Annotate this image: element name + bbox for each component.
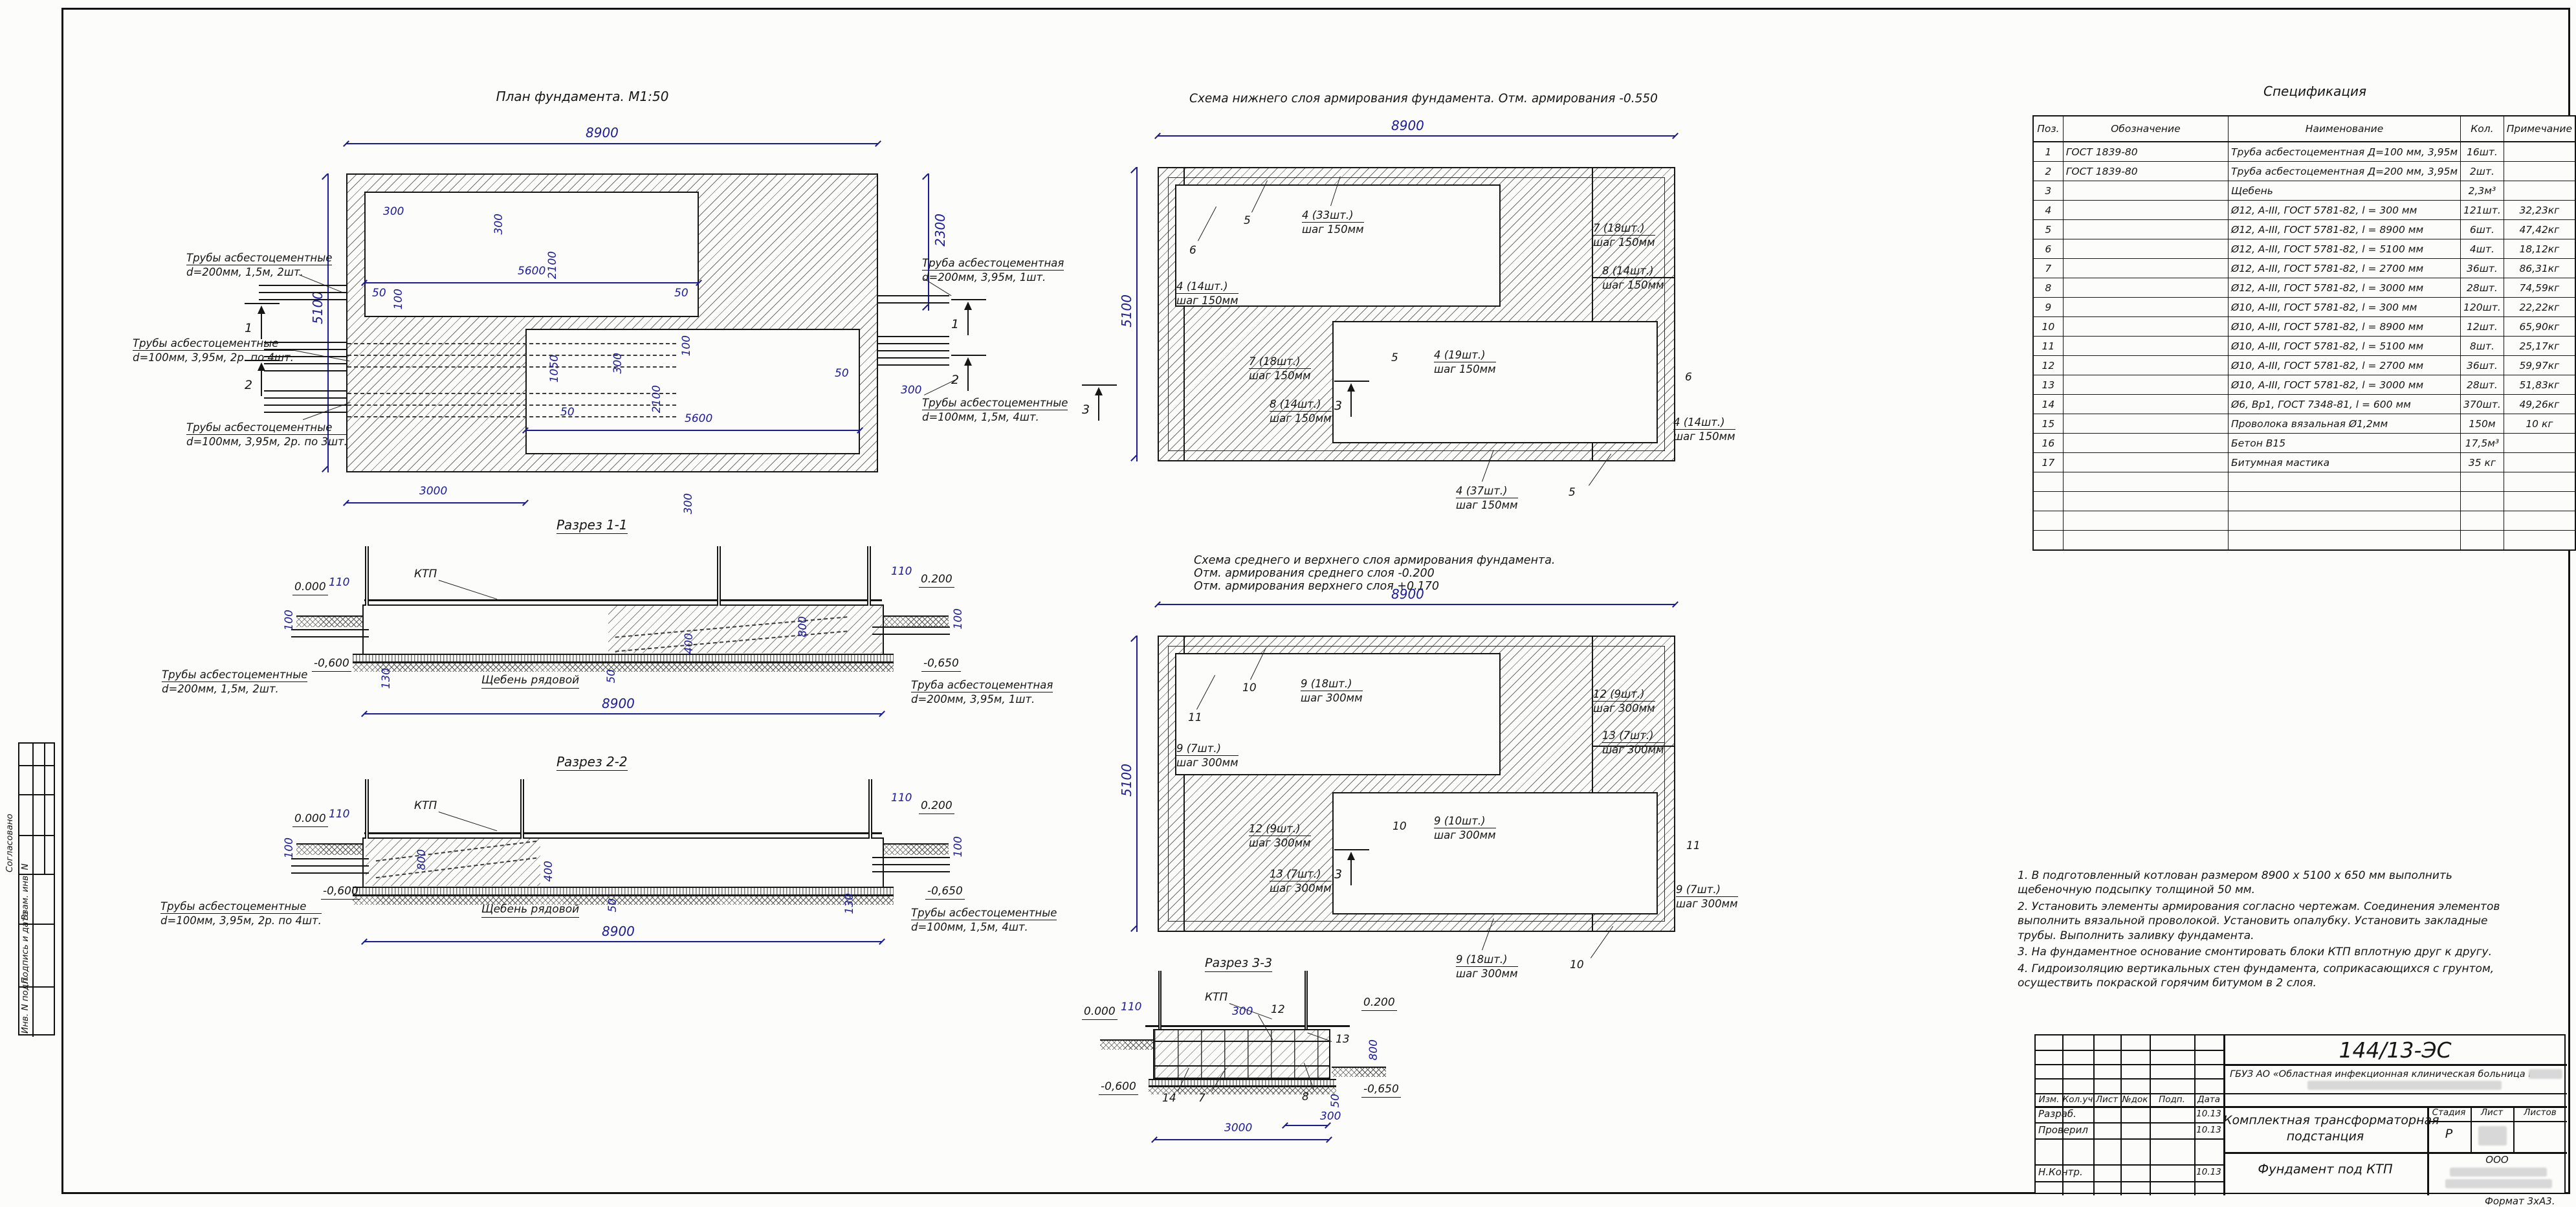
- spec-cell: [2229, 472, 2461, 492]
- spec-cell: Ø10, А-III, ГОСТ 5781-82, l = 300 мм: [2229, 298, 2461, 317]
- label-line: d=200мм, 1,5м, 2шт.: [186, 265, 332, 279]
- callout-9x18b: 9 (18шт.)шаг 300мм: [1456, 953, 1518, 981]
- tb-line: [2036, 1064, 2223, 1065]
- dim-800: 800: [416, 849, 429, 870]
- spec-cell: Ø6, Вр1, ГОСТ 7348-81, l = 600 мм: [2229, 395, 2461, 414]
- stamp-line: [32, 744, 34, 1037]
- spec-cell: [2504, 472, 2575, 492]
- callout-7x18: 7 (18шт.)шаг 150мм: [1593, 221, 1655, 250]
- callout-4x19: 4 (19шт.)шаг 150мм: [1434, 348, 1496, 377]
- level-0000: 0.000: [292, 581, 328, 595]
- dim-110: 110: [329, 808, 349, 821]
- rebar-line: [1154, 1041, 1329, 1042]
- spec-row: 4Ø12, А-III, ГОСТ 5781-82, l = 300 мм121…: [2033, 201, 2575, 220]
- spec-cell: [2063, 220, 2228, 239]
- dim-50: 50: [560, 406, 575, 419]
- scheme1-title: Схема нижнего слоя армирования фундамент…: [1184, 92, 1663, 105]
- redacted-block: [2478, 1126, 2507, 1146]
- spec-header-row: Поз. Обозначение Наименование Кол. Приме…: [2033, 116, 2575, 142]
- dim-line: [1158, 135, 1675, 137]
- tb-line: [2036, 1181, 2223, 1182]
- spec-cell: [2033, 511, 2063, 531]
- level-m600: -0,600: [321, 885, 360, 900]
- dim-line: [1158, 604, 1675, 605]
- spec-row: 16Бетон В1517,5м³: [2033, 434, 2575, 453]
- dim-line-300: [1285, 1125, 1328, 1126]
- spec-cell: [2063, 395, 2228, 414]
- gravel-label: Щебень рядовой: [481, 903, 579, 918]
- spec-row: 15Проволока вязальная Ø1,2мм150м10 кг: [2033, 414, 2575, 434]
- spec-cell: Битумная мастика: [2229, 453, 2461, 472]
- dim-line: [364, 713, 882, 714]
- spec-cell: 51,83кг: [2504, 375, 2575, 395]
- spec-cell: Труба асбестоцементная Д=100 мм, 3,95м: [2229, 142, 2461, 162]
- anchor-post: [717, 546, 721, 606]
- dim-3000: 3000: [1224, 1122, 1252, 1135]
- label-line: Трубы асбестоцементные: [186, 251, 332, 265]
- spec-row: 11Ø10, А-III, ГОСТ 5781-82, l = 5100 мм8…: [2033, 337, 2575, 356]
- label-line: Трубы асбестоцементные: [922, 396, 1068, 410]
- dim-8900: 8900: [602, 696, 635, 711]
- section-mark-3-scheme2: 3: [1334, 849, 1369, 888]
- spec-cell: [2063, 317, 2228, 337]
- spec-cell: 17: [2033, 453, 2063, 472]
- spec-cell: 59,97кг: [2504, 356, 2575, 375]
- dim-130: 130: [380, 668, 393, 689]
- callout-11b: 11: [1686, 840, 1701, 853]
- level-0000: 0.000: [1082, 1006, 1117, 1020]
- pipe-left: [291, 858, 369, 879]
- ktp-floor-line: [364, 832, 882, 834]
- spec-cell: Ø12, А-III, ГОСТ 5781-82, l = 8900 мм: [2229, 220, 2461, 239]
- spec-cell: Ø12, А-III, ГОСТ 5781-82, l = 3000 мм: [2229, 278, 2461, 298]
- dim-line-3000: [346, 502, 525, 504]
- spec-cell: [2063, 356, 2228, 375]
- listov-header: Листов: [2513, 1108, 2567, 1118]
- label-line: Трубы асбестоцементные: [186, 421, 347, 435]
- spec-row: 1ГОСТ 1839-80Труба асбестоцементная Д=10…: [2033, 142, 2575, 162]
- spec-cell: 47,42кг: [2504, 220, 2575, 239]
- spec-cell: 17,5м³: [2461, 434, 2504, 453]
- bar-12: 12: [1271, 1004, 1285, 1017]
- spec-cell: [2063, 511, 2228, 531]
- spec-cell: 10 кг: [2504, 414, 2575, 434]
- spec-row: 8Ø12, А-III, ГОСТ 5781-82, l = 3000 мм28…: [2033, 278, 2575, 298]
- callout-9x7b: 9 (7шт.)шаг 300мм: [1676, 883, 1738, 911]
- tb-line: [2120, 1035, 2122, 1195]
- dim-line-8900: [346, 143, 878, 144]
- spec-cell: 120шт.: [2461, 298, 2504, 317]
- spec-cell: 18,12кг: [2504, 239, 2575, 259]
- spec-cell: [2063, 492, 2228, 511]
- dim-110: 110: [329, 577, 349, 590]
- section-mark-2b: 2: [951, 355, 986, 393]
- project-name-line2: подстанция: [2223, 1130, 2427, 1144]
- redacted-block: [2445, 1179, 2552, 1188]
- spec-cell: 370шт.: [2461, 395, 2504, 414]
- spec-cell: [2229, 511, 2461, 531]
- spec-cell: [2063, 337, 2228, 356]
- spec-cell: [2504, 511, 2575, 531]
- dim-3000: 3000: [419, 485, 447, 498]
- stamp-line: [19, 835, 54, 836]
- stage-header: Стадия: [2427, 1108, 2471, 1118]
- ktp-label: КТП: [414, 800, 437, 813]
- spec-cell: 65,90кг: [2504, 317, 2575, 337]
- note-2: 2. Установить элементы армирования согла…: [2018, 900, 2521, 943]
- callout-10c: 10: [1570, 959, 1584, 972]
- spec-cell: [2504, 142, 2575, 162]
- dim-line: [1136, 636, 1138, 932]
- section-mark-3-scheme1: 3: [1334, 381, 1369, 419]
- rev-header-data: Дата: [2194, 1095, 2223, 1105]
- callout-13x7: 13 (7шт.)шаг 300мм: [1602, 729, 1664, 757]
- spec-row: 3Щебень2,3м³: [2033, 181, 2575, 201]
- tb-line: [2036, 1050, 2223, 1051]
- stamp-podpis-data: Подпись и дата: [21, 924, 31, 984]
- dim-line: [1136, 167, 1138, 461]
- dim-300: 300: [1232, 1006, 1253, 1019]
- dim-2100: 2100: [651, 385, 664, 413]
- pipe-right-d200: [877, 295, 949, 305]
- spec-cell: Ø10, А-III, ГОСТ 5781-82, l = 5100 мм: [2229, 337, 2461, 356]
- pipe-right: [872, 626, 950, 639]
- spec-cell: Ø12, А-III, ГОСТ 5781-82, l = 2700 мм: [2229, 259, 2461, 278]
- section1-title: Разрез 1-1: [556, 518, 628, 534]
- section-mark-1: 1: [245, 303, 280, 342]
- stamp-soglasovano: Согласовано: [5, 814, 16, 872]
- dim-line-3000: [1154, 1139, 1329, 1140]
- spec-cell: 35 кг: [2461, 453, 2504, 472]
- dim-800: 800: [1368, 1039, 1381, 1060]
- title-block: 144/13-ЭС ГБУЗ АО «Областная инфекционна…: [2034, 1034, 2566, 1194]
- section3-foundation-slab: [1153, 1029, 1330, 1079]
- dim-50: 50: [674, 287, 688, 300]
- date-razrab: 10.13: [2194, 1109, 2223, 1120]
- dim-130: 130: [844, 893, 857, 914]
- spec-cell: [2063, 414, 2228, 434]
- dim-110: 110: [891, 566, 912, 579]
- date-proveril: 10.13: [2194, 1125, 2223, 1136]
- spec-title: Спецификация: [2263, 84, 2366, 99]
- spec-cell: [2063, 375, 2228, 395]
- spec-cell: [2504, 531, 2575, 551]
- level-m650: -0,650: [925, 885, 965, 900]
- anchor-post: [1305, 971, 1308, 1029]
- spec-row: 17Битумная мастика35 кг: [2033, 453, 2575, 472]
- spec-cell: 11: [2033, 337, 2063, 356]
- dim-300: 300: [612, 353, 625, 373]
- stamp-line: [44, 744, 45, 874]
- spec-cell: 2: [2033, 162, 2063, 181]
- spec-cell: Бетон В15: [2229, 434, 2461, 453]
- spec-cell: 12шт.: [2461, 317, 2504, 337]
- spec-header-oboznachenie: Обозначение: [2063, 116, 2228, 142]
- spec-cell: [2504, 434, 2575, 453]
- stamp-line: [19, 794, 54, 795]
- dim-50: 50: [607, 898, 620, 913]
- spec-cell: ГОСТ 1839-80: [2063, 162, 2228, 181]
- anchor-post: [365, 546, 369, 606]
- spec-cell: 36шт.: [2461, 259, 2504, 278]
- dim-50: 50: [1330, 1094, 1343, 1108]
- spec-cell: 28шт.: [2461, 278, 2504, 298]
- dim-300: 300: [683, 493, 696, 514]
- dim-5100: 5100: [1119, 764, 1134, 797]
- dim-5600: 5600: [518, 265, 545, 278]
- level-0200: 0.200: [919, 573, 954, 588]
- ground-hatch: [1100, 1039, 1153, 1050]
- spec-cell: 150м: [2461, 414, 2504, 434]
- bar-8: 8: [1302, 1091, 1309, 1104]
- spec-cell: [2033, 472, 2063, 492]
- section2-foundation-slab: [362, 837, 884, 888]
- spec-cell: [2504, 162, 2575, 181]
- dim-300: 300: [1320, 1111, 1341, 1124]
- ktp-floor-line: [364, 599, 882, 601]
- spec-cell: 4шт.: [2461, 239, 2504, 259]
- dim-800: 800: [797, 616, 810, 637]
- label-line: Труба асбестоцементная: [922, 256, 1064, 271]
- dim-100: 100: [952, 836, 965, 857]
- section2-pipe-right-label: Трубы асбестоцементныеd=100мм, 1,5м, 4шт…: [911, 906, 1057, 935]
- spec-cell: [2229, 492, 2461, 511]
- spec-cell: [2063, 259, 2228, 278]
- spec-row: 14Ø6, Вр1, ГОСТ 7348-81, l = 600 мм370шт…: [2033, 395, 2575, 414]
- spec-cell: 9: [2033, 298, 2063, 317]
- spec-row: 2ГОСТ 1839-80Труба асбестоцементная Д=20…: [2033, 162, 2575, 181]
- client-name: ГБУЗ АО «Областная инфекционная клиничес…: [2230, 1069, 2527, 1080]
- scheme2-title-2: Отм. армирования среднего слоя -0.200: [1194, 567, 1435, 580]
- tb-line: [2036, 1122, 2223, 1124]
- callout-9x18: 9 (18шт.)шаг 300мм: [1301, 677, 1363, 705]
- ground-hatch: [884, 615, 949, 627]
- spec-row: [2033, 492, 2575, 511]
- plan-pipe-label-right-bot: Трубы асбестоцементные d=100мм, 1,5м, 4ш…: [922, 396, 1068, 425]
- dim-2100: 2100: [547, 251, 560, 279]
- dim-line-5600: [364, 282, 699, 283]
- notes-block: 1. В подготовленный котлован размером 89…: [2018, 869, 2521, 993]
- ground-hatch: [884, 843, 949, 855]
- dim-50: 50: [372, 287, 386, 300]
- role-razrab: Разраб.: [2038, 1109, 2076, 1120]
- spec-cell: ГОСТ 1839-80: [2063, 142, 2228, 162]
- ktp-label: КТП: [1205, 991, 1227, 1004]
- spec-cell: [2461, 531, 2504, 551]
- sheet-name: Фундамент под КТП: [2223, 1162, 2427, 1177]
- bar-13: 13: [1336, 1034, 1350, 1046]
- ground-hatch: [296, 615, 362, 627]
- callout-5c: 5: [1569, 487, 1576, 500]
- spec-row: [2033, 531, 2575, 551]
- pipe-right: [872, 857, 950, 874]
- rev-header-izm: Изм.: [2036, 1095, 2062, 1105]
- hidden-pipe-line: [347, 366, 676, 368]
- dim-8900: 8900: [1391, 587, 1424, 602]
- label-line: d=200мм, 3,95м, 1шт.: [922, 271, 1064, 284]
- stamp-inv-podl: Инв. N подл.: [21, 986, 31, 1034]
- tb-line: [2223, 1152, 2567, 1154]
- pipe-left: [291, 629, 369, 642]
- callout-6: 6: [1189, 245, 1196, 258]
- spec-cell: [2504, 453, 2575, 472]
- plan-opening-1: [364, 192, 699, 317]
- scheme2-title-1: Схема среднего и верхнего слоя армирован…: [1194, 554, 1556, 567]
- company-name: ООО: [2427, 1155, 2567, 1166]
- spec-row: 7Ø12, А-III, ГОСТ 5781-82, l = 2700 мм36…: [2033, 259, 2575, 278]
- pipe-bundle-right-d100: [877, 336, 949, 366]
- spec-cell: 16: [2033, 434, 2063, 453]
- label-line: d=100мм, 3,95м, 2р. по 3шт.: [186, 435, 347, 448]
- spec-header-kol: Кол.: [2461, 116, 2504, 142]
- rev-header-ndok: №док: [2120, 1095, 2150, 1105]
- stage-value: Р: [2427, 1127, 2471, 1142]
- dim-50: 50: [835, 368, 849, 381]
- ground-hatch: [353, 894, 894, 905]
- scheme1-opening-2: [1332, 321, 1658, 443]
- spec-cell: Проволока вязальная Ø1,2мм: [2229, 414, 2461, 434]
- bar-7: 7: [1198, 1092, 1205, 1105]
- spec-cell: [2033, 492, 2063, 511]
- spec-cell: 5: [2033, 220, 2063, 239]
- hidden-pipe-line: [347, 393, 676, 394]
- spec-cell: 6шт.: [2461, 220, 2504, 239]
- spec-row: 6Ø12, А-III, ГОСТ 5781-82, l = 5100 мм4ш…: [2033, 239, 2575, 259]
- dim-110: 110: [1121, 1001, 1141, 1014]
- spec-header-poz: Поз.: [2033, 116, 2063, 142]
- spec-row: [2033, 472, 2575, 492]
- callout-10b: 10: [1393, 821, 1407, 834]
- section-mark-2: 2: [245, 360, 280, 399]
- spec-row: 12Ø10, А-III, ГОСТ 5781-82, l = 2700 мм3…: [2033, 356, 2575, 375]
- spec-cell: 86,31кг: [2504, 259, 2575, 278]
- dim-line-2300: [928, 173, 929, 311]
- slab-hatch: [366, 839, 540, 886]
- format-note: Формат 3xА3.: [2485, 1196, 2555, 1207]
- spec-cell: 4: [2033, 201, 2063, 220]
- dim-100: 100: [393, 289, 406, 309]
- stamp-line: [19, 765, 54, 766]
- spec-cell: 2шт.: [2461, 162, 2504, 181]
- spec-cell: Труба асбестоцементная Д=200 мм, 3,95м: [2229, 162, 2461, 181]
- ground-hatch: [353, 661, 894, 672]
- dim-8900: 8900: [602, 924, 635, 939]
- spec-cell: 10: [2033, 317, 2063, 337]
- spec-cell: [2063, 201, 2228, 220]
- spec-cell: 22,22кг: [2504, 298, 2575, 317]
- ground-hatch: [1332, 1067, 1386, 1077]
- spec-cell: 25,17кг: [2504, 337, 2575, 356]
- role-proveril: Проверил: [2038, 1125, 2088, 1136]
- callout-9x10: 9 (10шт.)шаг 300мм: [1434, 814, 1496, 843]
- bar-14: 14: [1162, 1092, 1176, 1105]
- spec-cell: [2063, 181, 2228, 201]
- dim-line: [364, 941, 882, 942]
- rebar-line: [1154, 1065, 1329, 1067]
- spec-cell: 28шт.: [2461, 375, 2504, 395]
- anchor-post: [520, 779, 524, 839]
- tb-line: [2150, 1035, 2151, 1195]
- spec-row: 5Ø12, А-III, ГОСТ 5781-82, l = 8900 мм6ш…: [2033, 220, 2575, 239]
- callout-8x14: 8 (14шт.)шаг 150мм: [1602, 264, 1664, 293]
- spec-cell: 49,26кг: [2504, 395, 2575, 414]
- callout-13x7b: 13 (7шт.)шаг 300мм: [1270, 867, 1332, 896]
- plan-title: План фундамента. М1:50: [453, 89, 712, 104]
- dim-100: 100: [283, 837, 296, 858]
- tb-line: [2223, 1093, 2567, 1094]
- level-m600: -0,600: [312, 658, 351, 672]
- level-0000: 0.000: [292, 813, 328, 827]
- callout-11: 11: [1188, 712, 1202, 725]
- hidden-pipe-line: [347, 355, 676, 356]
- tb-line: [2223, 1064, 2567, 1066]
- rev-header-list: Лист: [2093, 1095, 2120, 1105]
- level-0200: 0.200: [1361, 997, 1397, 1011]
- spec-cell: 14: [2033, 395, 2063, 414]
- callout-8x14b: 8 (14шт.)шаг 150мм: [1270, 397, 1332, 426]
- spec-cell: 2,3м³: [2461, 181, 2504, 201]
- spec-cell: Ø12, А-III, ГОСТ 5781-82, l = 300 мм: [2229, 201, 2461, 220]
- dim-300: 300: [901, 384, 921, 397]
- list-header: Лист: [2471, 1108, 2513, 1118]
- section-mark-1b: 1: [951, 299, 986, 338]
- ground-hatch: [296, 843, 362, 855]
- dim-5600: 5600: [685, 413, 712, 426]
- note-1: 1. В подготовленный котлован размером 89…: [2018, 869, 2521, 898]
- spec-cell: [2063, 531, 2228, 551]
- note-4: 4. Гидроизоляцию вертикальных стен фунда…: [2018, 962, 2521, 991]
- dim-400: 400: [543, 861, 556, 881]
- spec-cell: [2461, 472, 2504, 492]
- spec-cell: Ø12, А-III, ГОСТ 5781-82, l = 5100 мм: [2229, 239, 2461, 259]
- pipe-bundle-left-d200: [259, 285, 347, 302]
- date-nkontr: 10.13: [2194, 1168, 2223, 1178]
- tb-line: [2093, 1035, 2095, 1195]
- hidden-pipe-line: [347, 416, 676, 417]
- spec-cell: 16шт.: [2461, 142, 2504, 162]
- spec-row: 10Ø10, А-III, ГОСТ 5781-82, l = 8900 мм1…: [2033, 317, 2575, 337]
- spec-cell: 6: [2033, 239, 2063, 259]
- spec-cell: [2063, 278, 2228, 298]
- dim-50: 50: [606, 669, 619, 683]
- spec-cell: 74,59кг: [2504, 278, 2575, 298]
- callout-4x14b: 4 (14шт.)шаг 150мм: [1673, 415, 1735, 444]
- anchor-post: [868, 779, 872, 839]
- dim-8900: 8900: [1391, 118, 1424, 133]
- role-nkontr: Н.Контр.: [2038, 1167, 2083, 1178]
- project-name-line1: Комплектная трансформаторная: [2223, 1114, 2427, 1128]
- dim-100: 100: [952, 608, 965, 629]
- tb-line: [2036, 1078, 2223, 1080]
- anchor-post: [1158, 971, 1161, 1029]
- spec-cell: 13: [2033, 375, 2063, 395]
- gravel-label: Щебень рядовой: [481, 674, 579, 689]
- callout-4x14: 4 (14шт.)шаг 150мм: [1176, 280, 1238, 308]
- section1-pipe-right-label: Труба асбестоцементнаяd=200мм, 3,95м, 1ш…: [911, 678, 1053, 707]
- callout-9x7: 9 (7шт.)шаг 300мм: [1176, 742, 1238, 770]
- spec-cell: 8шт.: [2461, 337, 2504, 356]
- redacted-block: [2529, 1069, 2562, 1079]
- drawing-sheet: Согласовано Взам. инв. N Подпись и дата …: [0, 0, 2576, 1207]
- section2-title: Разрез 2-2: [556, 755, 628, 771]
- callout-5: 5: [1244, 215, 1251, 228]
- spec-cell: [2063, 239, 2228, 259]
- ktp-floor-line: [1145, 1025, 1350, 1027]
- spec-cell: [2063, 434, 2228, 453]
- scheme2-opening-2: [1332, 792, 1658, 914]
- redacted-block: [2450, 1168, 2547, 1177]
- dim-100: 100: [283, 610, 296, 630]
